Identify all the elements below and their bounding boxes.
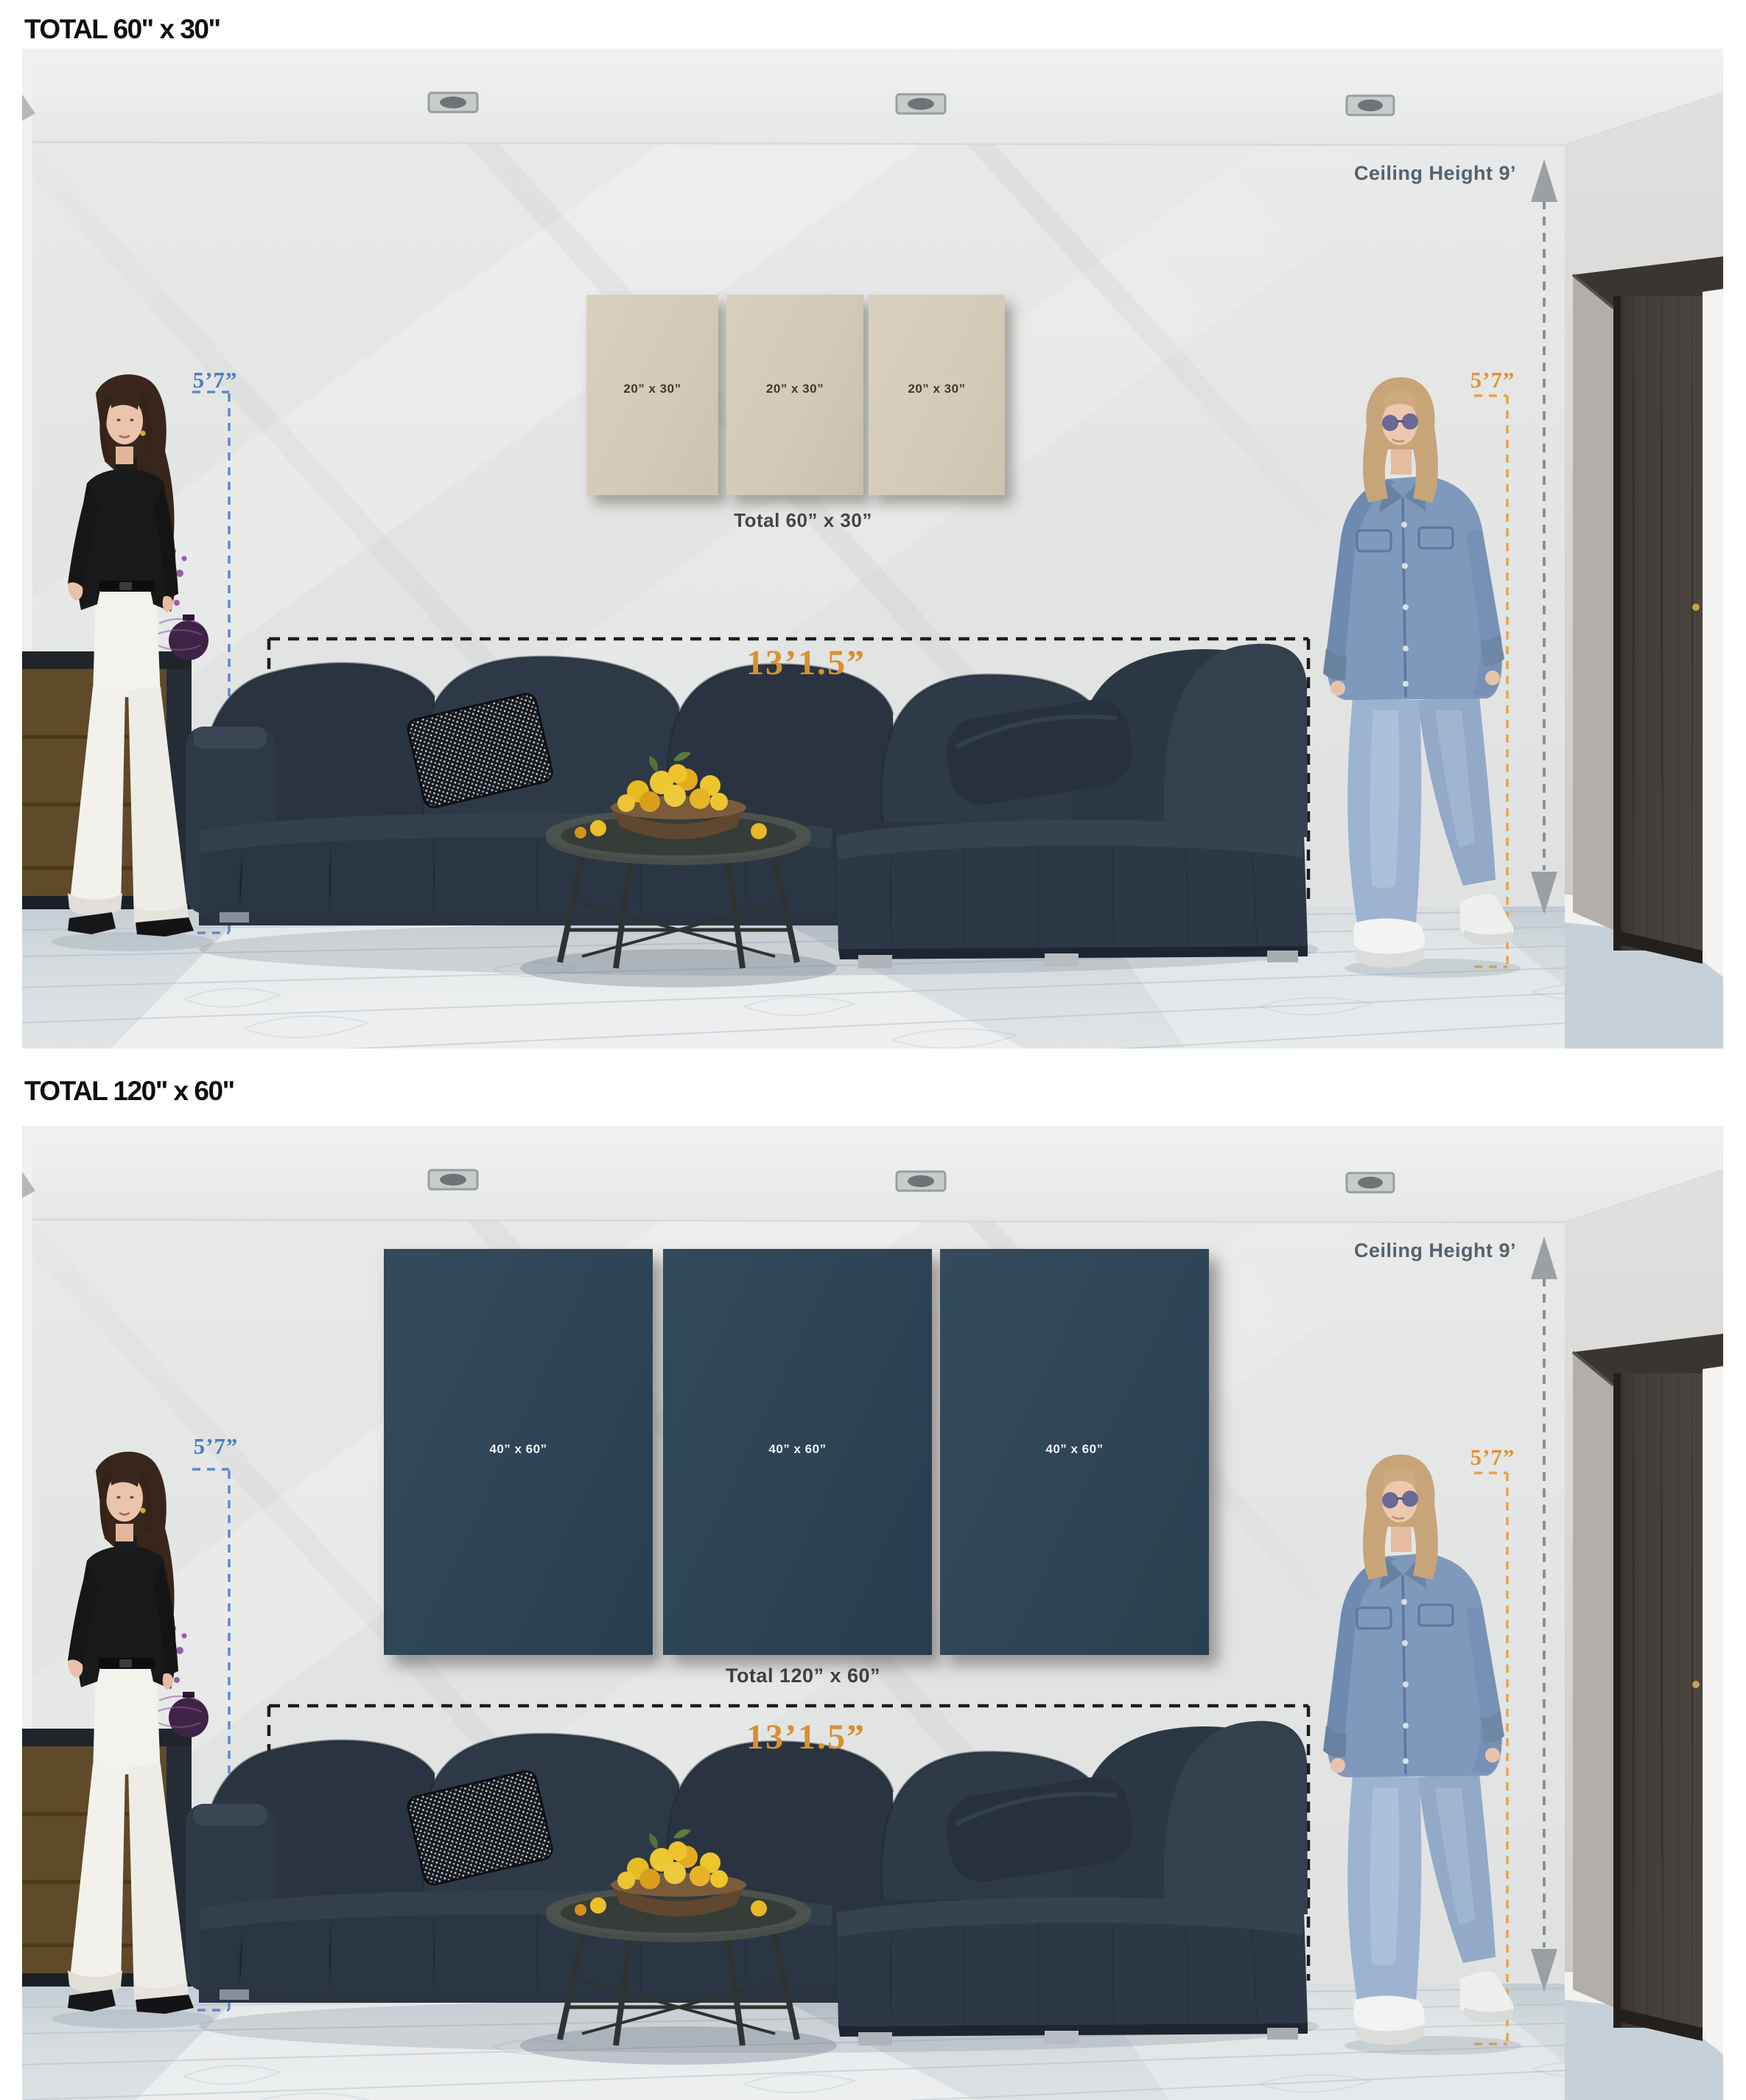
svg-text:Ceiling Height 9’: Ceiling Height 9’ xyxy=(1354,1239,1516,1261)
svg-text:Ceiling Height 9’: Ceiling Height 9’ xyxy=(1354,162,1516,184)
